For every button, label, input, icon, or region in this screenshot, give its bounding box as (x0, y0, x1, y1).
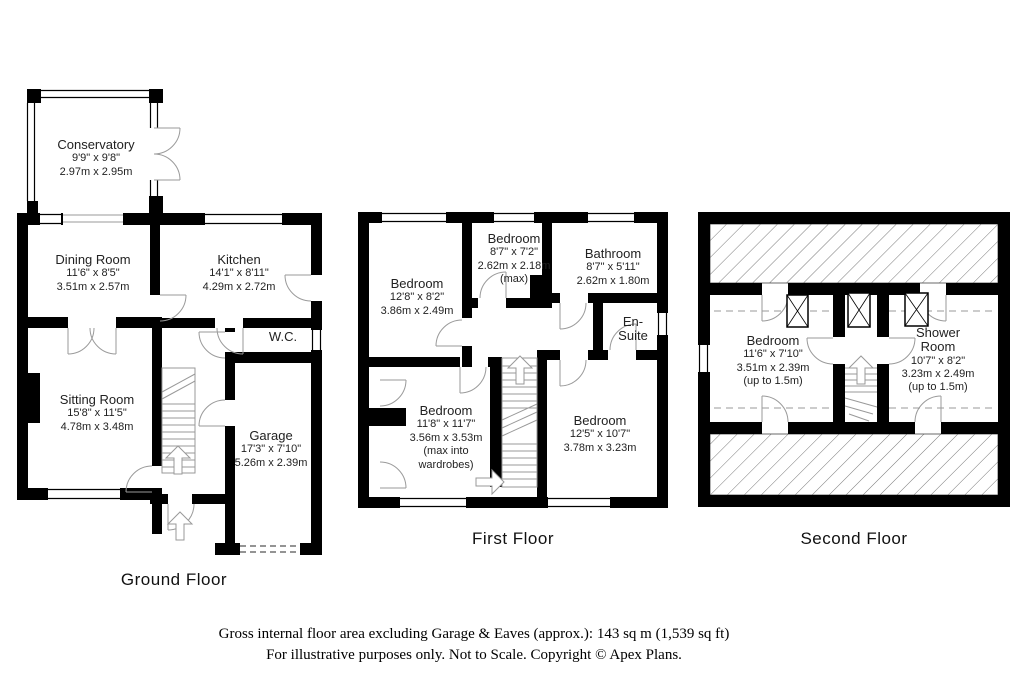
room-name: Bedroom (401, 404, 491, 418)
room-imperial: 11'6" x 7'10" (708, 348, 838, 361)
second-windows (700, 345, 708, 372)
room-note: (up to 1.5m) (708, 375, 838, 388)
room-imperial: 12'8" x 8'2" (352, 291, 482, 304)
room-metric: 2.62m x 1.80m (548, 275, 678, 288)
room-label-wc: W.C. (218, 330, 348, 344)
room-imperial: 10'7" x 8'2" (873, 355, 1003, 368)
room-metric: 3.86m x 2.49m (352, 305, 482, 318)
room-name: Bedroom (708, 334, 838, 348)
room-name: Sitting Room (32, 393, 162, 407)
room-metric: 3.78m x 3.23m (535, 442, 665, 455)
room-metric: 4.29m x 2.72m (174, 281, 304, 294)
room-label-en-suite: En-Suite (610, 315, 656, 344)
room-metric: 3.56m x 3.53m (401, 432, 491, 445)
room-label-bedroom-3: Bedroom 11'8" x 11'7" 3.56m x 3.53m (max… (401, 404, 491, 472)
room-name: Garage (206, 429, 336, 443)
room-name: Bathroom (548, 247, 678, 261)
room-label-bedroom-5: Bedroom 11'6" x 7'10" 3.51m x 2.39m (up … (708, 334, 838, 389)
room-label-conservatory: Conservatory 9'9" x 9'8" 2.97m x 2.95m (31, 138, 161, 179)
room-name: Bedroom (449, 232, 579, 246)
footer-disclaimer: Gross internal floor area excluding Gara… (219, 624, 730, 666)
entry-arrow (168, 512, 192, 540)
ground-floor-title: Ground Floor (121, 570, 227, 590)
room-imperial: 9'9" x 9'8" (31, 152, 161, 165)
room-name: Conservatory (31, 138, 161, 152)
first-floor-title: First Floor (472, 529, 554, 549)
room-imperial: 11'8" x 11'7" (401, 418, 491, 431)
room-label-bathroom: Bathroom 8'7" x 5'11" 2.62m x 1.80m (548, 247, 678, 288)
room-name: Dining Room (28, 253, 158, 267)
room-name: Kitchen (174, 253, 304, 267)
floorplan-page: Conservatory 9'9" x 9'8" 2.97m x 2.95m D… (0, 0, 1024, 682)
eaves-storage-bottom (710, 434, 998, 495)
room-label-kitchen: Kitchen 14'1" x 8'11" 4.29m x 2.72m (174, 253, 304, 294)
room-metric: 3.51m x 2.39m (708, 362, 838, 375)
second-floor-title: Second Floor (800, 529, 907, 549)
conservatory-opening (63, 215, 123, 222)
room-metric: 5.26m x 2.39m (206, 457, 336, 470)
room-label-garage: Garage 17'3" x 7'10" 5.26m x 2.39m (206, 429, 336, 470)
room-metric: 4.78m x 3.48m (32, 421, 162, 434)
skylight-icons (787, 293, 928, 327)
room-name: En-Suite (610, 315, 656, 344)
room-metric: 2.97m x 2.95m (31, 166, 161, 179)
room-imperial: 15'8" x 11'5" (32, 407, 162, 420)
footer-area-line: Gross internal floor area excluding Gara… (219, 624, 730, 645)
footer-copyright-line: For illustrative purposes only. Not to S… (219, 645, 730, 666)
room-label-dining-room: Dining Room 11'6" x 8'5" 3.51m x 2.57m (28, 253, 158, 294)
room-imperial: 12'5" x 10'7" (535, 428, 665, 441)
eaves-storage-top (710, 224, 998, 283)
room-metric: 3.51m x 2.57m (28, 281, 158, 294)
room-note: (up to 1.5m) (873, 381, 1003, 394)
room-label-bedroom-4: Bedroom 12'5" x 10'7" 3.78m x 3.23m (535, 414, 665, 455)
room-note: (max into wardrobes) (401, 445, 491, 472)
room-imperial: 17'3" x 7'10" (206, 443, 336, 456)
garage-door-opening (240, 546, 300, 552)
room-label-shower-room: Shower Room 10'7" x 8'2" 3.23m x 2.49m (… (873, 326, 1003, 395)
room-name: W.C. (218, 330, 348, 344)
room-label-sitting-room: Sitting Room 15'8" x 11'5" 4.78m x 3.48m (32, 393, 162, 434)
room-imperial: 11'6" x 8'5" (28, 267, 158, 280)
room-imperial: 14'1" x 8'11" (174, 267, 304, 280)
room-name: Shower Room (903, 326, 973, 355)
room-name: Bedroom (535, 414, 665, 428)
room-imperial: 8'7" x 5'11" (548, 261, 678, 274)
room-metric: 3.23m x 2.49m (873, 368, 1003, 381)
